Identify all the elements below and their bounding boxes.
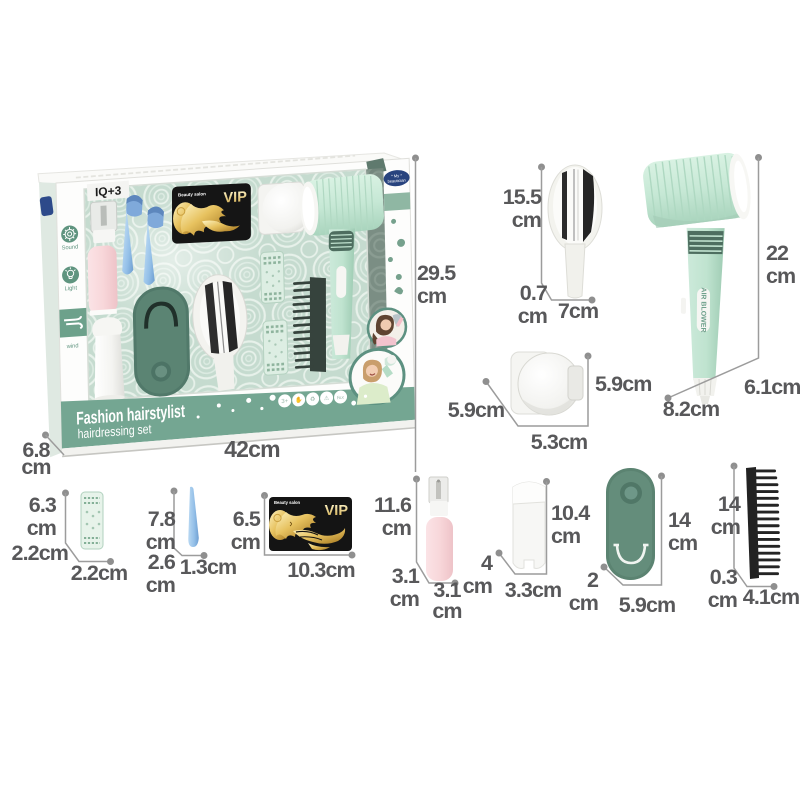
- svg-text:cm: cm: [146, 573, 175, 597]
- svg-text:2.2cm: 2.2cm: [12, 541, 68, 565]
- svg-text:Sound: Sound: [62, 244, 79, 251]
- svg-text:cm: cm: [231, 530, 260, 554]
- svg-text:⚠: ⚠: [324, 395, 330, 402]
- svg-text:14: 14: [668, 508, 691, 532]
- svg-text:42cm: 42cm: [224, 436, 280, 462]
- svg-text:10.3cm: 10.3cm: [287, 558, 355, 582]
- svg-text:cm: cm: [21, 455, 50, 479]
- svg-text:11.6: 11.6: [374, 493, 412, 517]
- svg-text:Beauty salon: Beauty salon: [274, 500, 301, 505]
- svg-text:15.5: 15.5: [503, 185, 542, 209]
- svg-text:6.3: 6.3: [29, 493, 57, 517]
- svg-text:22: 22: [766, 241, 789, 265]
- svg-text:4: 4: [481, 551, 493, 575]
- svg-text:cm: cm: [551, 524, 580, 548]
- svg-text:0.7: 0.7: [520, 281, 548, 305]
- svg-text:cm: cm: [27, 516, 56, 540]
- svg-text:6.1cm: 6.1cm: [744, 375, 800, 399]
- svg-text:cm: cm: [463, 574, 492, 598]
- svg-text:10.4: 10.4: [551, 501, 590, 525]
- svg-text:♻: ♻: [310, 396, 316, 403]
- svg-text:cm: cm: [390, 587, 419, 611]
- svg-text:AIR BLOWER: AIR BLOWER: [699, 287, 706, 332]
- svg-text:1.3cm: 1.3cm: [180, 555, 236, 579]
- svg-text:cm: cm: [432, 599, 461, 623]
- svg-text:3.3cm: 3.3cm: [505, 578, 561, 602]
- svg-text:℻: ℻: [337, 395, 344, 401]
- svg-text:2.2cm: 2.2cm: [71, 561, 127, 585]
- svg-text:wind: wind: [66, 343, 79, 350]
- svg-text:cm: cm: [569, 591, 598, 615]
- svg-text:7cm: 7cm: [558, 299, 598, 323]
- svg-text:14: 14: [718, 492, 741, 516]
- svg-text:cm: cm: [382, 516, 411, 540]
- svg-text:cm: cm: [518, 304, 547, 328]
- svg-text:4.1cm: 4.1cm: [743, 585, 799, 609]
- svg-text:5.9cm: 5.9cm: [595, 372, 651, 396]
- svg-text:IQ+3: IQ+3: [95, 183, 122, 199]
- svg-text:3+: 3+: [281, 399, 288, 406]
- svg-text:6.5: 6.5: [233, 507, 261, 531]
- svg-text:VIP: VIP: [224, 189, 248, 206]
- svg-text:5.3cm: 5.3cm: [531, 430, 587, 454]
- svg-text:5.9cm: 5.9cm: [448, 398, 504, 422]
- svg-text:5.9cm: 5.9cm: [619, 593, 675, 617]
- svg-text:cm: cm: [766, 264, 795, 288]
- svg-text:cm: cm: [512, 208, 541, 232]
- svg-text:cm: cm: [708, 588, 737, 612]
- svg-text:cm: cm: [668, 531, 697, 555]
- svg-text:cm: cm: [711, 515, 740, 539]
- svg-text:7.8: 7.8: [148, 507, 176, 531]
- svg-text:VIP: VIP: [325, 503, 349, 519]
- svg-text:Light: Light: [65, 285, 78, 292]
- svg-text:2: 2: [587, 568, 599, 592]
- svg-text:3.1: 3.1: [392, 564, 420, 588]
- svg-text:8.2cm: 8.2cm: [663, 397, 719, 421]
- svg-text:2.6: 2.6: [148, 550, 176, 574]
- svg-text:29.5: 29.5: [417, 261, 456, 285]
- svg-text:0.3: 0.3: [710, 565, 738, 589]
- svg-text:cm: cm: [417, 284, 446, 308]
